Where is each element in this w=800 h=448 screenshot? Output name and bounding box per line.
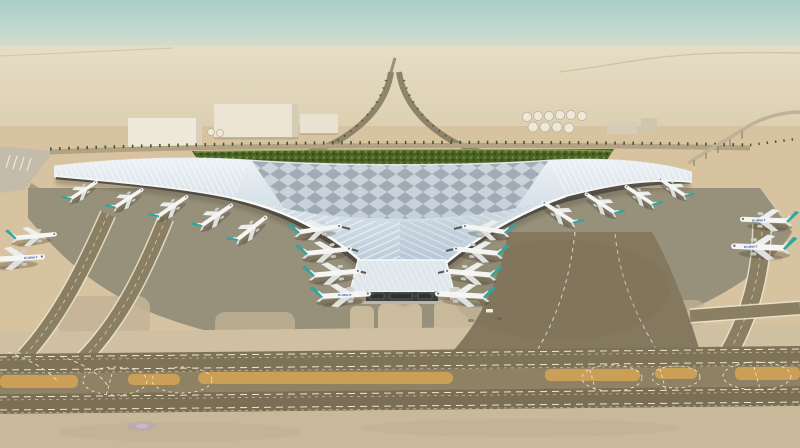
render-canvas: KUWAIT KUWAIT KUWAIT KUWAIT bbox=[0, 0, 800, 448]
aircraft-livery-text: KUWAIT bbox=[24, 255, 38, 260]
aircraft-livery-text: KUWAIT bbox=[338, 293, 352, 297]
desert-horizon bbox=[0, 46, 800, 132]
airport-aerial-render: KUWAIT KUWAIT KUWAIT KUWAIT bbox=[0, 0, 800, 448]
aircraft-livery-text: KUWAIT bbox=[752, 218, 766, 222]
taxiway-band bbox=[0, 346, 800, 448]
aircraft-livery-text: KUWAIT bbox=[744, 245, 758, 249]
